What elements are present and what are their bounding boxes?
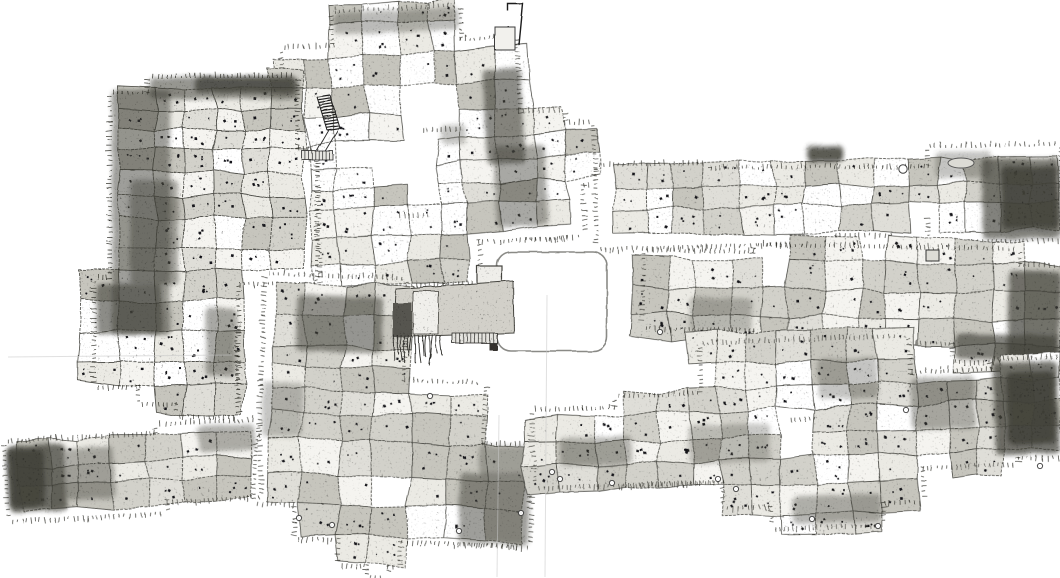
hearth-dot: [460, 422, 462, 424]
shaded-patch: [1002, 166, 1059, 229]
room: [521, 463, 560, 495]
room: [185, 149, 214, 173]
hearth-dot: [393, 544, 395, 546]
hearth-dot: [1009, 253, 1011, 255]
room: [655, 459, 694, 488]
room: [304, 387, 344, 416]
hearth-dot: [426, 209, 428, 211]
hearth-dot: [947, 246, 949, 248]
hearth-dot: [178, 366, 180, 368]
room: [810, 327, 849, 363]
room: [744, 360, 777, 390]
room: [333, 206, 375, 237]
hearth-dot: [898, 446, 900, 448]
hearth-dot: [362, 527, 364, 529]
room: [692, 260, 733, 288]
hearth-dot: [198, 231, 201, 234]
room: [950, 449, 978, 478]
hearth-dot: [759, 396, 761, 398]
room: [340, 365, 376, 393]
room: [214, 383, 246, 415]
hearth-dot: [282, 207, 285, 210]
hearth-dot: [254, 138, 257, 141]
hearth-dot: [327, 400, 330, 403]
hearth-dot: [661, 179, 664, 182]
room: [433, 49, 457, 86]
room: [656, 410, 693, 443]
hearth-dot: [315, 423, 317, 425]
shaded-patch: [9, 449, 46, 509]
room: [309, 210, 337, 241]
room: [647, 206, 674, 233]
door-pivot-circle: [518, 510, 523, 515]
hearth-dot: [165, 372, 167, 374]
shaded-patch: [689, 297, 752, 332]
hearth-dot: [641, 293, 643, 295]
hearth-dot: [643, 452, 646, 455]
hearth-dot: [434, 402, 437, 405]
hearth-dot: [723, 401, 726, 404]
hearth-dot: [287, 371, 290, 374]
room: [784, 259, 827, 292]
hearth-dot: [334, 381, 336, 383]
hearth-dot: [865, 439, 867, 441]
hearth-dot: [842, 488, 844, 490]
room: [702, 185, 740, 209]
room: [268, 172, 305, 198]
room: [614, 163, 648, 189]
room: [847, 452, 880, 483]
hearth-dot: [298, 359, 301, 362]
hearth-dot: [276, 261, 279, 264]
hearth-dot: [201, 468, 203, 470]
hearth-dot: [235, 120, 238, 123]
room: [331, 84, 370, 117]
hearth-dot: [202, 143, 204, 145]
room: [954, 264, 995, 295]
room: [671, 163, 704, 189]
room: [632, 255, 672, 290]
hearth-dot: [353, 555, 356, 558]
room: [404, 504, 446, 541]
room: [629, 311, 672, 342]
door-pivot-circle: [733, 486, 738, 491]
hearth-dot: [273, 488, 275, 490]
hearth-dot: [869, 491, 871, 493]
shaded-patch: [195, 77, 295, 93]
door-pivot-circle: [657, 329, 662, 334]
room: [182, 127, 218, 149]
room: [862, 259, 886, 293]
hearth-dot: [540, 458, 542, 460]
shaded-patch: [296, 295, 384, 354]
shaded-patch: [198, 424, 255, 453]
room: [774, 203, 806, 235]
hearth-dot: [176, 322, 178, 324]
room: [336, 475, 373, 508]
hearth-dot: [284, 485, 286, 487]
room: [268, 148, 306, 176]
room: [805, 160, 839, 186]
room: [182, 248, 216, 271]
hearth-dot: [463, 456, 466, 459]
hearth-dot: [783, 399, 786, 402]
hearth-dot: [381, 43, 383, 45]
room: [872, 327, 915, 360]
hearth-dot: [394, 243, 396, 245]
hearth-dot: [667, 196, 670, 199]
room: [744, 331, 777, 366]
room: [335, 504, 372, 535]
room: [296, 502, 341, 538]
hearth-dot: [362, 181, 365, 184]
hearth-dot: [683, 321, 686, 324]
room: [752, 484, 781, 517]
hearth-dot: [417, 35, 420, 38]
hearth-dot: [446, 245, 448, 247]
room: [883, 292, 921, 319]
hearth-dot: [580, 423, 582, 425]
hearth-dot: [720, 216, 722, 218]
hearth-dot: [460, 224, 463, 227]
room: [813, 453, 850, 485]
hearth-dot: [703, 419, 706, 422]
hearth-dot: [245, 487, 248, 490]
room: [886, 235, 917, 264]
hearth-dot: [901, 498, 904, 501]
room: [789, 235, 826, 260]
hearth-dot: [422, 467, 425, 470]
hearth-dot: [306, 481, 308, 483]
hearth-dot: [201, 156, 203, 158]
hearth-dot: [767, 193, 769, 195]
room: [846, 403, 878, 432]
room: [740, 160, 777, 186]
hearth-dot: [145, 339, 147, 341]
room: [839, 183, 875, 207]
hearth-dot: [348, 94, 350, 96]
hearth-dot: [441, 43, 444, 46]
hearth-dot: [399, 360, 401, 362]
room: [802, 203, 842, 235]
hearth-dot: [229, 161, 232, 164]
hearth-dot: [876, 310, 879, 313]
hearth-dot: [932, 341, 934, 343]
door-pivot-circle: [549, 469, 554, 474]
hearth-dot: [90, 278, 92, 280]
hearth-dot: [298, 289, 300, 291]
hearth-dot: [455, 526, 457, 528]
hearth-dot: [645, 434, 647, 436]
room: [366, 534, 408, 567]
room: [369, 440, 413, 478]
room: [310, 237, 340, 266]
room: [369, 506, 409, 539]
room: [338, 415, 371, 441]
room: [214, 216, 245, 249]
hearth-dot: [755, 221, 757, 223]
room: [212, 131, 246, 149]
hearth-dot: [792, 378, 795, 381]
room: [871, 202, 910, 234]
room: [339, 392, 375, 417]
room: [398, 50, 436, 85]
hearth-dot: [197, 349, 199, 351]
room: [182, 194, 214, 219]
room: [918, 317, 956, 347]
hearth-dot: [800, 340, 803, 343]
hearth-dot: [254, 179, 256, 181]
room: [267, 470, 302, 503]
hearth-dot: [783, 350, 785, 352]
hearth-dot: [886, 214, 889, 217]
room: [779, 454, 818, 486]
door-pivot-circle: [875, 523, 880, 528]
hearth-dot: [579, 479, 581, 481]
room: [298, 471, 342, 504]
room: [909, 185, 940, 204]
hearth-dot: [842, 247, 844, 249]
room: [774, 329, 811, 364]
room: [738, 185, 777, 208]
hearth-dot: [113, 368, 115, 370]
hearth-dot: [867, 524, 870, 527]
oval-structure: [948, 158, 974, 168]
hearth-dot: [725, 274, 727, 276]
door-pivot-circle: [903, 407, 908, 412]
hearth-dot: [985, 392, 987, 394]
room: [596, 465, 628, 491]
hearth-dot: [454, 221, 456, 223]
hearth-dot: [611, 473, 614, 476]
room: [334, 533, 369, 563]
room: [368, 111, 404, 142]
shaded-patch: [910, 376, 976, 430]
room: [671, 206, 704, 235]
hearth-dot: [205, 375, 208, 378]
hearth-dot: [446, 74, 449, 77]
door-pivot-circle: [329, 522, 334, 527]
hearth-dot: [190, 136, 192, 138]
hearth-dot: [448, 155, 451, 158]
hearth-dot: [231, 182, 233, 184]
hearth-dot: [129, 380, 131, 382]
hearth-dot: [772, 491, 775, 494]
hearth-dot: [801, 326, 803, 328]
hearth-dot: [86, 275, 88, 277]
hearth-dot: [763, 197, 765, 199]
hearth-dot: [781, 216, 783, 218]
hearth-dot: [232, 206, 235, 209]
roof-structure: [926, 250, 939, 261]
room: [337, 235, 376, 267]
hearth-dot: [263, 224, 266, 227]
hearth-dot: [176, 138, 178, 140]
hearth-dot: [359, 525, 362, 528]
open-square-room: [495, 27, 515, 50]
door-pivot-circle: [1037, 463, 1042, 468]
room: [241, 217, 272, 250]
hearth-dot: [448, 191, 450, 193]
room: [879, 478, 920, 513]
hearth-dot: [853, 349, 856, 352]
room: [520, 441, 556, 467]
hearth-dot: [457, 221, 459, 223]
door-pivot-circle: [296, 515, 301, 520]
room: [241, 148, 270, 174]
room: [269, 249, 304, 269]
room: [624, 460, 660, 489]
room: [405, 477, 447, 508]
room: [916, 264, 958, 294]
room: [771, 161, 805, 187]
hearth-dot: [291, 238, 293, 240]
hearth-dot: [841, 492, 843, 494]
shaded-patch: [441, 124, 466, 145]
hearth-dot: [886, 372, 888, 374]
hearth-dot: [353, 64, 355, 66]
hearth-dot: [383, 294, 386, 297]
hearth-dot: [427, 63, 429, 65]
hearth-dot: [393, 514, 395, 516]
hearth-dot: [209, 118, 211, 120]
room: [632, 285, 669, 316]
hearth-dot: [379, 243, 382, 246]
shaded-patch: [688, 423, 771, 464]
hearth-dot: [837, 478, 839, 480]
room: [181, 475, 217, 503]
hearth-dot: [466, 129, 468, 131]
hearth-dot: [568, 474, 570, 476]
hearth-dot: [317, 463, 319, 465]
hearth-dot: [435, 453, 437, 455]
shaded-patch: [1006, 371, 1056, 445]
room: [241, 249, 271, 270]
shaded-patch: [96, 284, 162, 334]
well-circle: [899, 165, 907, 173]
hearth-dot: [826, 424, 829, 427]
room: [304, 59, 331, 90]
door-pivot-circle: [427, 393, 432, 398]
hearth-dot: [328, 255, 331, 258]
hearth-dot: [141, 368, 144, 371]
hearth-dot: [290, 119, 292, 121]
room: [450, 393, 488, 417]
room: [299, 413, 343, 441]
hearth-dot: [289, 322, 292, 325]
room: [847, 430, 878, 455]
hearth-dot: [357, 173, 359, 175]
hearth-dot: [821, 442, 823, 444]
hearth-dot: [476, 118, 478, 120]
hearth-dot: [195, 448, 198, 451]
hearth-dot: [728, 345, 730, 347]
hearth-dot: [455, 226, 457, 228]
room: [439, 233, 469, 260]
hearth-dot: [456, 275, 459, 278]
hearth-dot: [739, 398, 742, 401]
room: [825, 237, 863, 262]
hearth-dot: [789, 175, 792, 178]
shaded-patch: [493, 144, 549, 227]
hearth-dot: [390, 227, 392, 229]
hearth-dot: [193, 258, 195, 260]
room: [953, 290, 994, 322]
hearth-dot: [731, 349, 734, 352]
hearth-dot: [790, 391, 792, 393]
room: [883, 261, 921, 294]
hearth-dot: [257, 185, 259, 187]
hearth-dot: [378, 45, 381, 48]
hearth-dot: [385, 359, 387, 361]
hearth-dot: [629, 228, 632, 231]
settlement-plan-figure: [0, 0, 1060, 578]
room: [370, 205, 411, 238]
room: [955, 238, 994, 265]
room: [328, 55, 365, 88]
hearth-dot: [478, 127, 480, 129]
shaded-patch: [458, 472, 530, 544]
hearth-dot: [425, 211, 427, 213]
room: [440, 202, 469, 235]
room: [183, 268, 217, 302]
hearth-dot: [473, 404, 475, 406]
hearth-dot: [227, 159, 229, 161]
room: [685, 330, 720, 364]
shaded-patch: [560, 436, 633, 466]
room: [303, 86, 334, 119]
hearth-dot: [225, 200, 227, 202]
hearth-dot: [289, 209, 291, 211]
hearth-dot: [905, 350, 908, 353]
room: [407, 258, 444, 284]
cluster-bottom-left: [0, 414, 267, 526]
hearth-dot: [365, 386, 367, 388]
room: [340, 262, 377, 286]
room: [937, 181, 968, 203]
room: [215, 473, 252, 501]
door-pivot-circle: [609, 480, 614, 485]
hearth-dot: [857, 445, 859, 447]
hearth-dot: [253, 116, 256, 119]
hearth-dot: [797, 470, 799, 472]
hearth-dot: [352, 194, 354, 196]
hearth-dot: [321, 293, 323, 295]
hearth-dot: [229, 491, 231, 493]
hearth-dot: [295, 158, 298, 161]
hearth-dot: [803, 352, 806, 355]
hearth-dot: [322, 132, 325, 135]
room: [774, 185, 806, 204]
hearth-dot: [398, 400, 401, 403]
hearth-dot: [725, 167, 728, 170]
room: [337, 439, 373, 477]
hearth-dot: [191, 204, 194, 207]
hearth-dot: [839, 467, 841, 469]
hearth-dot: [171, 348, 174, 351]
shaded-patch: [206, 308, 236, 376]
door-pivot-circle: [715, 476, 720, 481]
room: [406, 234, 443, 261]
room: [702, 161, 741, 187]
room: [298, 438, 342, 476]
room: [182, 383, 215, 416]
hearth-dot: [357, 277, 359, 279]
hearth-dot: [682, 220, 684, 222]
edge-fringe-ticks: [363, 565, 392, 578]
hearth-dot: [164, 407, 167, 410]
room: [119, 362, 154, 386]
